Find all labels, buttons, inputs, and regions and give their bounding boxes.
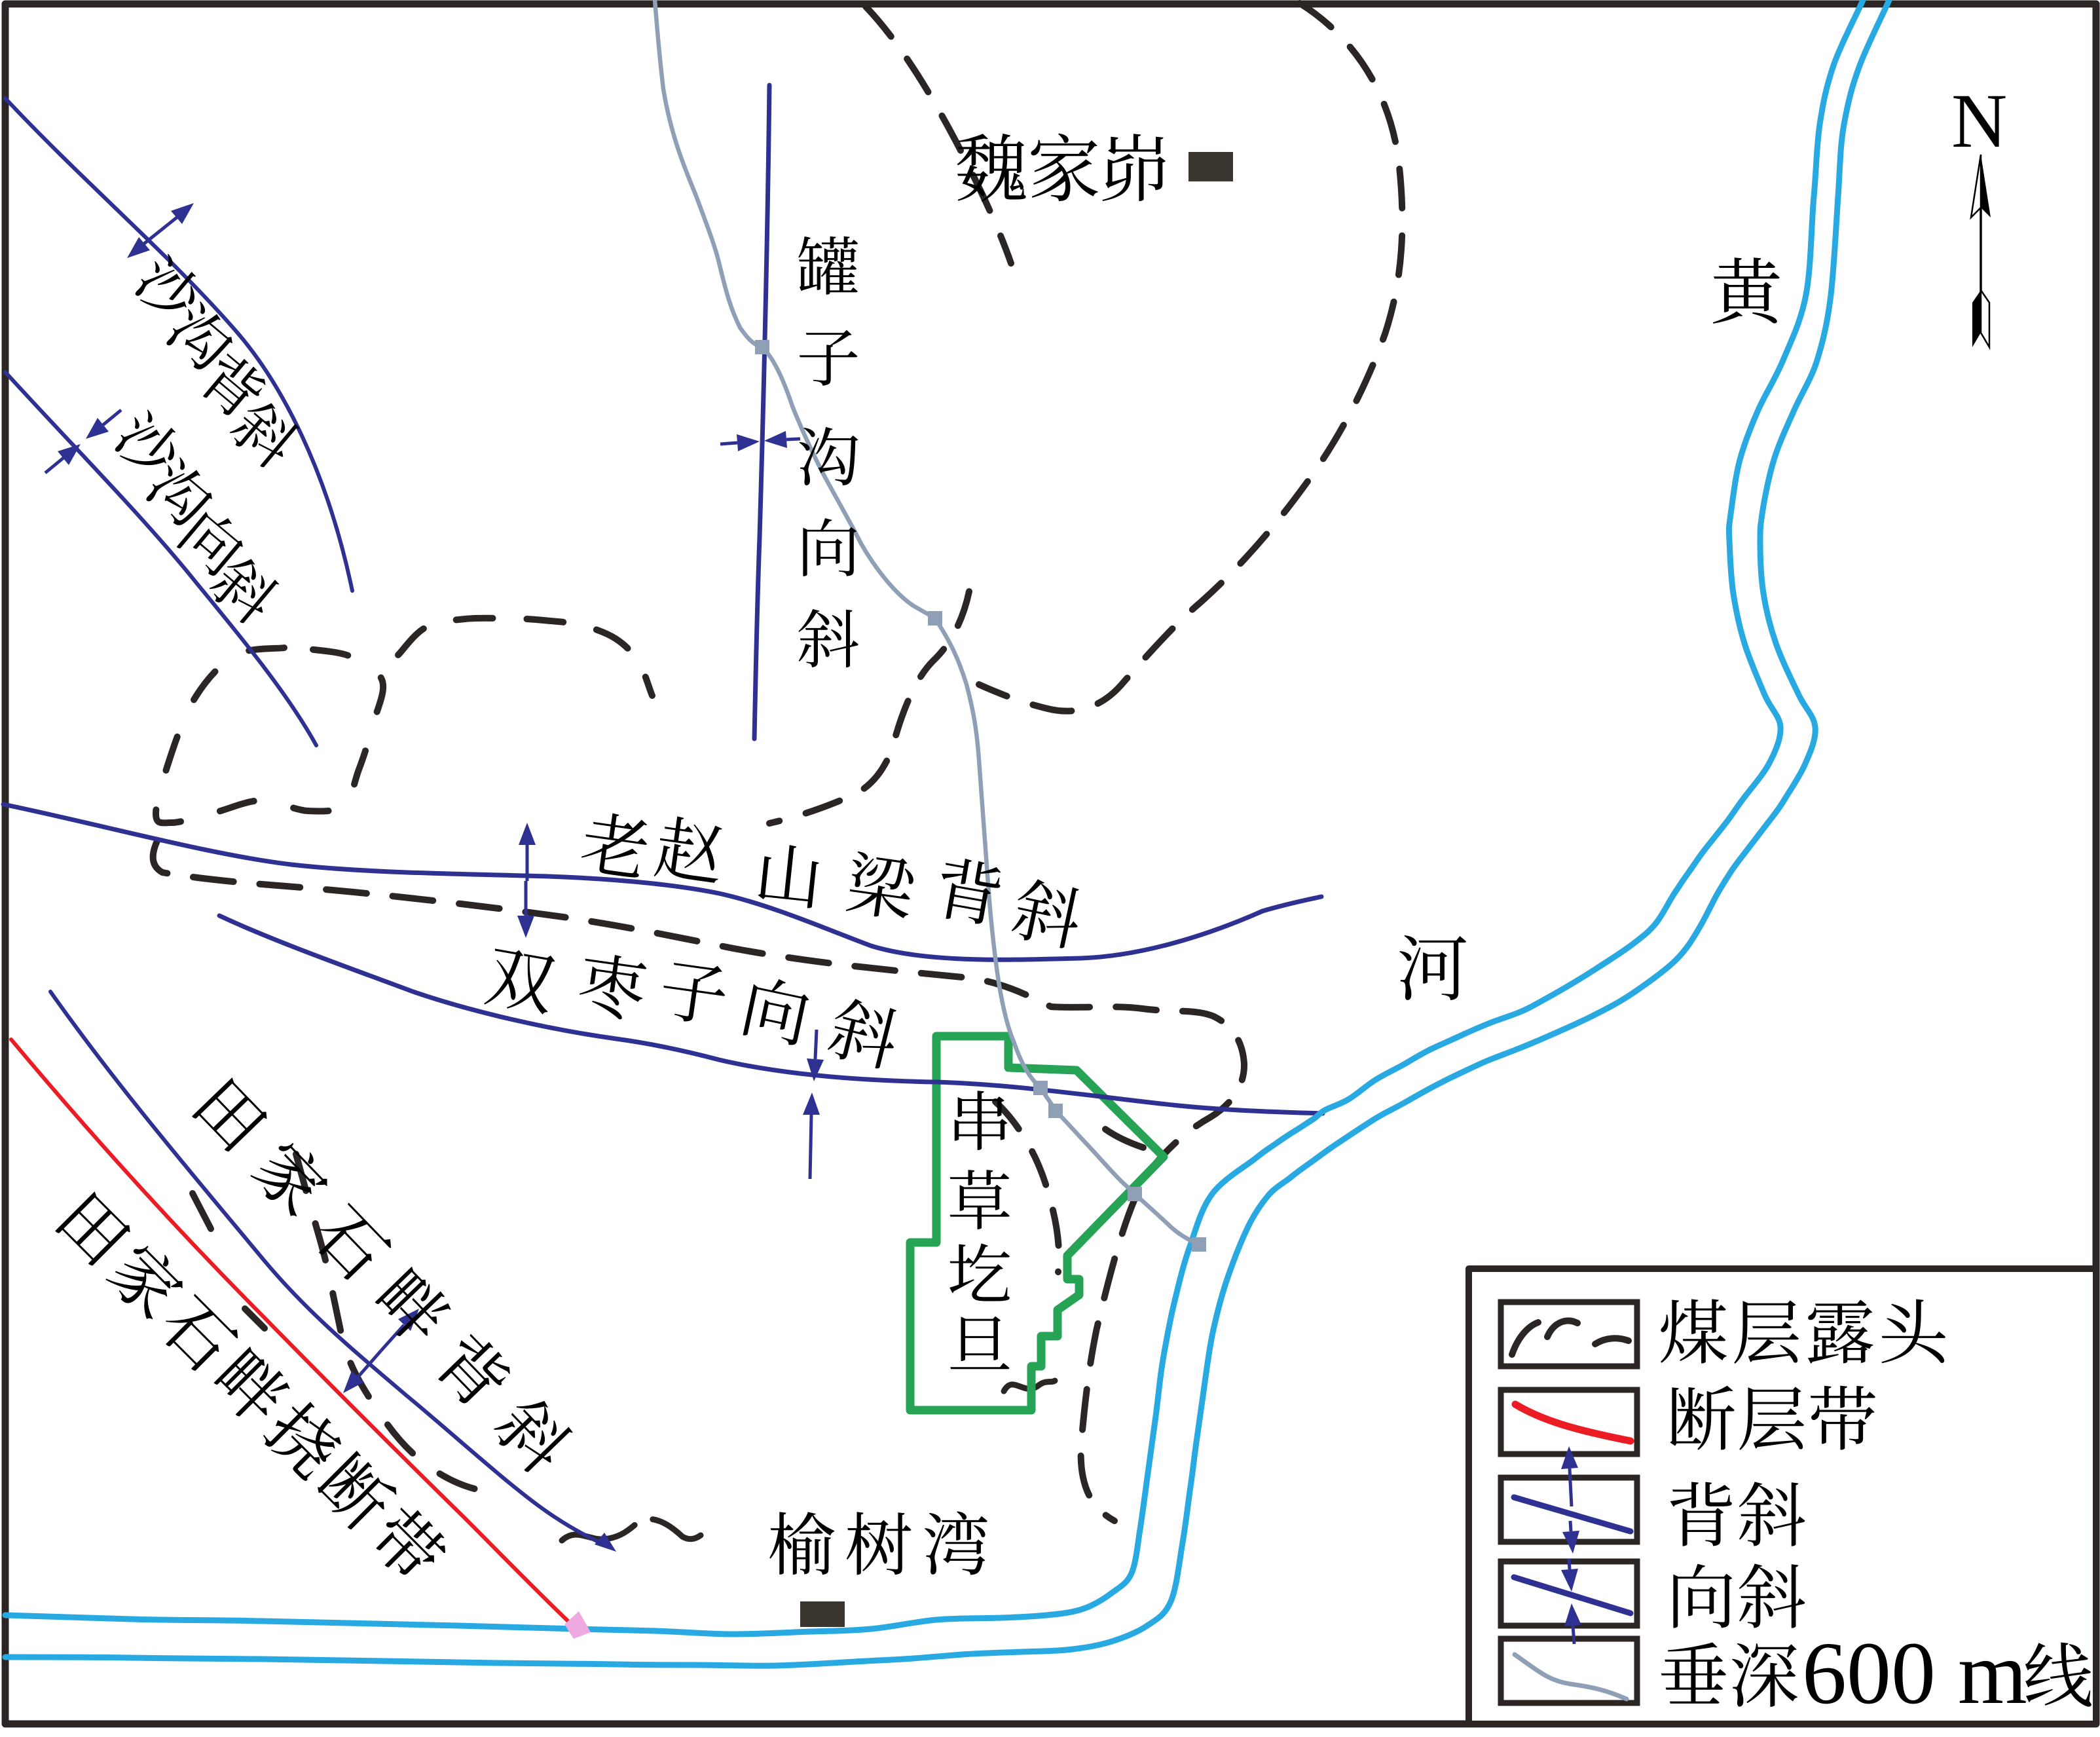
svg-text:600 m: 600 m <box>1802 1624 2027 1723</box>
svg-text:N: N <box>1951 78 2007 164</box>
